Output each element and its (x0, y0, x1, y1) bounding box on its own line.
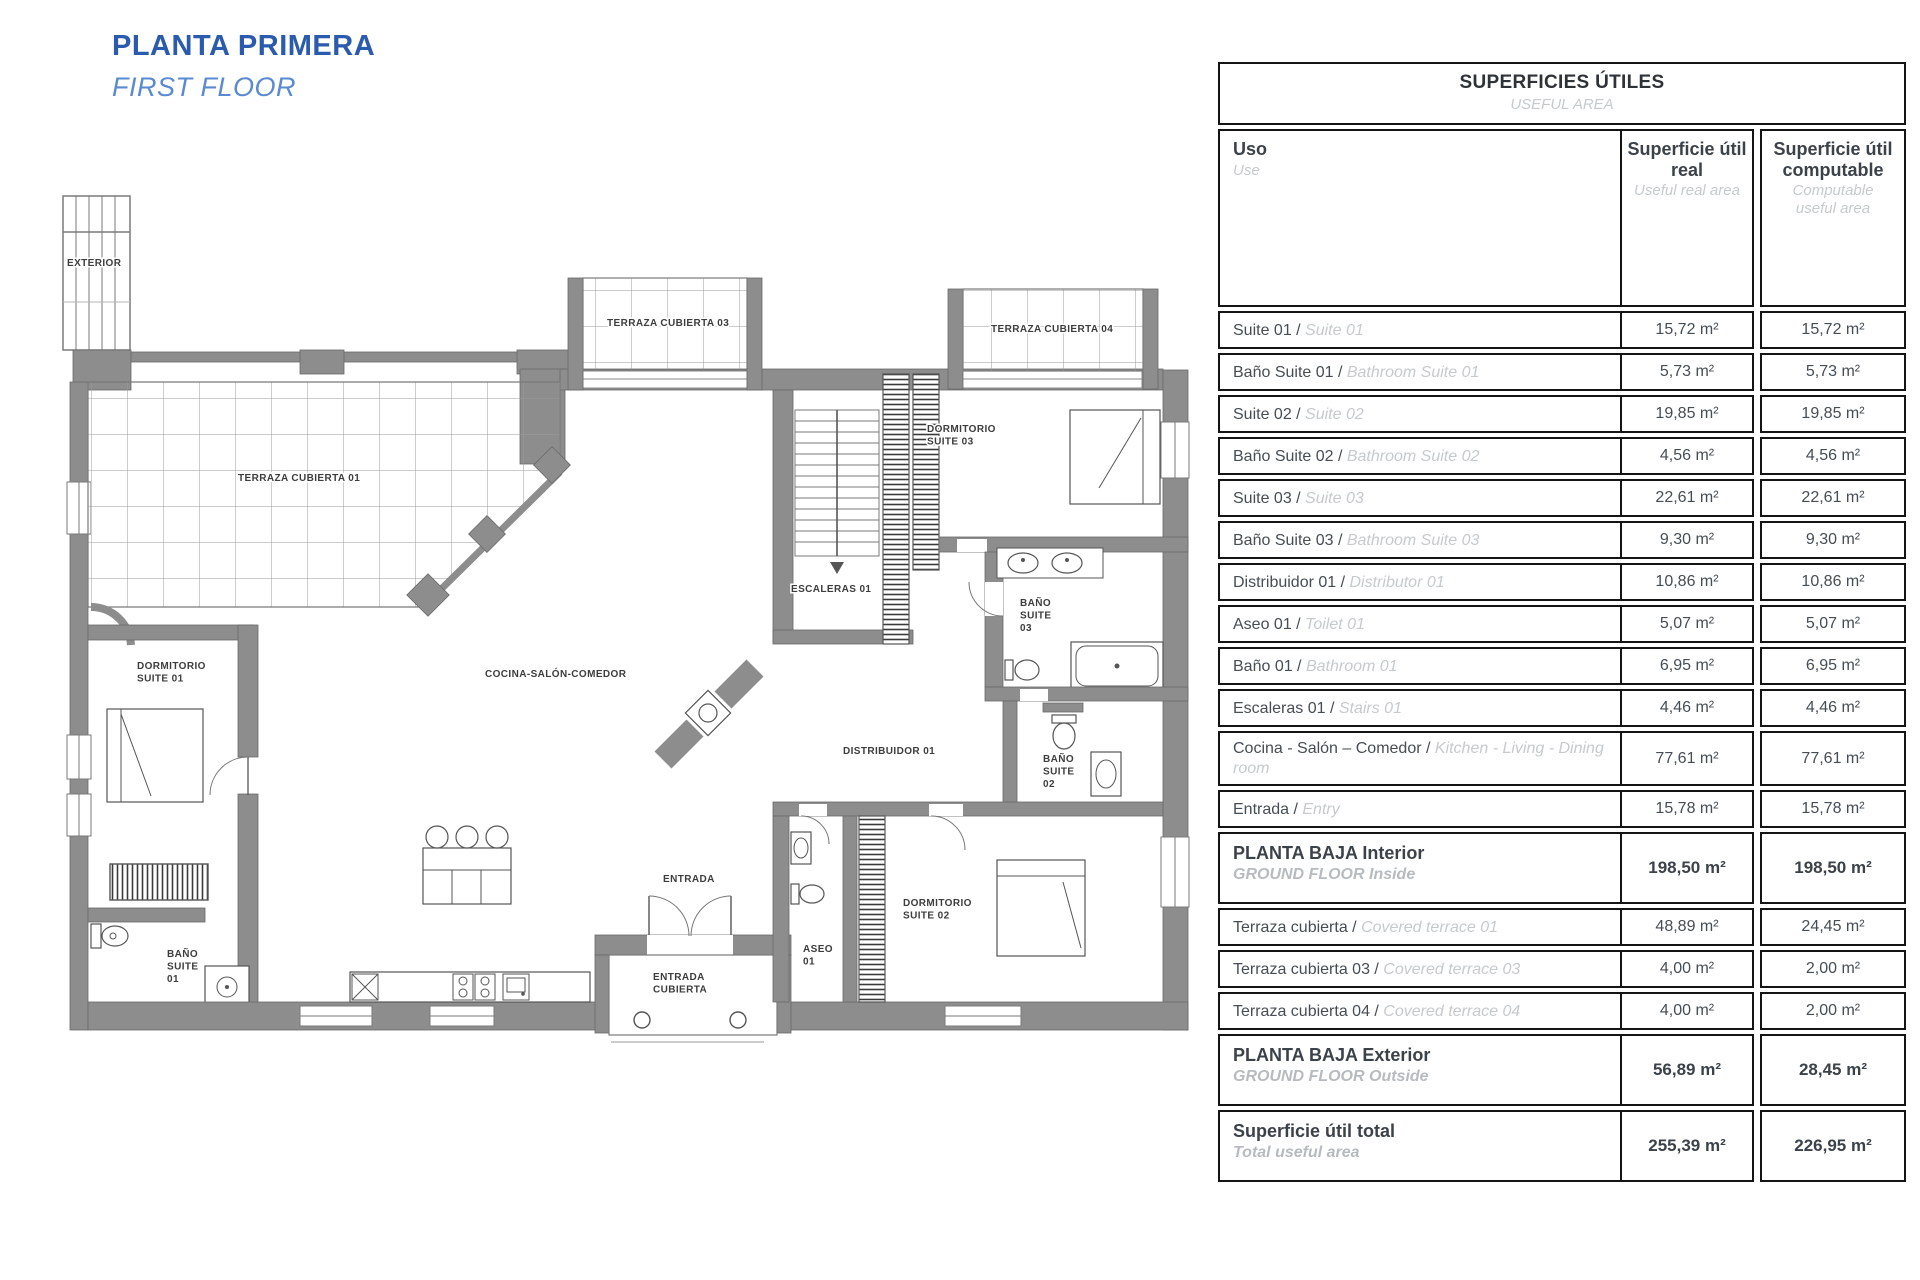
room-label-dormitorio01: DORMITORIOSUITE 01 (137, 661, 206, 685)
kitchen (350, 826, 590, 1002)
real-area-cell: 6,95 m² (1622, 649, 1752, 683)
real-area-cell: 10,86 m² (1622, 565, 1752, 599)
real-area-cell: 77,61 m² (1622, 733, 1752, 784)
use-cell: Aseo 01 / Toilet 01 (1220, 607, 1622, 641)
use-cell: Baño Suite 03 / Bathroom Suite 03 (1220, 523, 1622, 557)
use-cell: Cocina - Salón – Comedor / Kitchen - Liv… (1220, 733, 1622, 784)
real-area-cell: 48,89 m² (1622, 910, 1752, 944)
stool-icon (486, 826, 508, 848)
computable-area-cell: 22,61 m² (1760, 479, 1906, 517)
table-row: Entrada / Entry15,78 m²15,78 m² (1218, 790, 1906, 828)
table-row: Baño 01 / Bathroom 016,95 m²6,95 m² (1218, 647, 1906, 685)
floor-plan: EXTERIORTERRAZA CUBIERTA 01TERRAZA CUBIE… (55, 182, 1190, 1062)
computable-area-cell: 6,95 m² (1760, 647, 1906, 685)
toilet-room-01 (791, 832, 824, 904)
sink-icon (1091, 752, 1121, 796)
table-row: Baño Suite 03 / Bathroom Suite 039,30 m²… (1218, 521, 1906, 559)
use-cell: Terraza cubierta 04 / Covered terrace 04 (1220, 994, 1622, 1028)
room-label-terraza04: TERRAZA CUBIERTA 04 (991, 324, 1113, 335)
room-label-dormitorio02: DORMITORIOSUITE 02 (903, 898, 972, 922)
use-cell: Terraza cubierta 03 / Covered terrace 03 (1220, 952, 1622, 986)
room-label-escaleras01: ESCALERAS 01 (791, 584, 871, 595)
toilet-icon (1005, 660, 1039, 680)
computable-area-cell: 24,45 m² (1760, 908, 1906, 946)
table-row: Suite 02 / Suite 0219,85 m²19,85 m² (1218, 395, 1906, 433)
table-row: Aseo 01 / Toilet 015,07 m²5,07 m² (1218, 605, 1906, 643)
room-label-bano_suite02: BAÑOSUITE02 (1043, 752, 1074, 790)
column-header-uso: Uso (1233, 139, 1610, 160)
use-cell: Terraza cubierta / Covered terrace 01 (1220, 910, 1622, 944)
bedroom-suite-02 (859, 816, 1085, 1002)
computable-area-cell: 4,46 m² (1760, 689, 1906, 727)
table-row: Suite 01 / Suite 0115,72 m²15,72 m² (1218, 311, 1906, 349)
use-cell: Baño Suite 01 / Bathroom Suite 01 (1220, 355, 1622, 389)
column-header-real: Superficie útil real (1624, 139, 1750, 180)
real-area-cell: 15,78 m² (1622, 792, 1752, 826)
real-area-cell: 5,73 m² (1622, 355, 1752, 389)
room-label-bano_suite03: BAÑOSUITE03 (1020, 596, 1051, 634)
terrace-01 (88, 382, 570, 645)
table-row: PLANTA BAJA InteriorGROUND FLOOR Inside1… (1218, 832, 1906, 904)
fireplace (663, 668, 755, 760)
page-subtitle: FIRST FLOOR (112, 72, 296, 103)
table-subtitle: USEFUL AREA (1224, 96, 1900, 113)
real-area-cell: 15,72 m² (1622, 313, 1752, 347)
entrance-porch (595, 896, 791, 1042)
toilet-icon (91, 924, 128, 948)
bed-suite-03 (1070, 410, 1160, 504)
room-label-aseo01: ASEO01 (803, 944, 833, 968)
stool-icon (426, 826, 448, 848)
page: PLANTA PRIMERA FIRST FLOOR (0, 0, 1920, 1280)
computable-area-cell: 28,45 m² (1760, 1034, 1906, 1106)
table-row: Terraza cubierta / Covered terrace 0148,… (1218, 908, 1906, 946)
page-title: PLANTA PRIMERA (112, 30, 375, 63)
sink-icon (791, 832, 811, 864)
table-row: Terraza cubierta 03 / Covered terrace 03… (1218, 950, 1906, 988)
column-header-uso-en: Use (1233, 162, 1610, 179)
double-door-icon (649, 896, 731, 936)
real-area-cell: 255,39 m² (1622, 1112, 1752, 1180)
kitchen-counter (350, 972, 590, 1002)
computable-area-cell: 198,50 m² (1760, 832, 1906, 904)
computable-area-cell: 4,56 m² (1760, 437, 1906, 475)
shelf (1043, 703, 1083, 712)
wardrobe-suite-02 (859, 816, 885, 1002)
computable-area-cell: 19,85 m² (1760, 395, 1906, 433)
computable-area-cell: 2,00 m² (1760, 950, 1906, 988)
use-cell: PLANTA BAJA InteriorGROUND FLOOR Inside (1220, 834, 1622, 902)
computable-area-cell: 9,30 m² (1760, 521, 1906, 559)
table-row: Suite 03 / Suite 0322,61 m²22,61 m² (1218, 479, 1906, 517)
bathroom-suite-02 (1003, 701, 1121, 802)
table-title: SUPERFICIES ÚTILES (1224, 72, 1900, 94)
room-label-dormitorio03: DORMITORIOSUITE 03 (927, 424, 996, 448)
wardrobe-strip (913, 374, 939, 570)
real-area-cell: 22,61 m² (1622, 481, 1752, 515)
real-area-cell: 4,00 m² (1622, 952, 1752, 986)
bathtub-icon (1071, 642, 1163, 690)
bed-suite-02 (997, 860, 1085, 956)
wardrobe-strip (883, 374, 909, 644)
computable-area-cell: 77,61 m² (1760, 731, 1906, 786)
column-header-computable-en: Computable useful area (1772, 182, 1894, 217)
stool-icon (456, 826, 478, 848)
computable-area-cell: 15,72 m² (1760, 311, 1906, 349)
room-label-entrada_cubierta: ENTRADACUBIERTA (653, 972, 707, 996)
stair-direction-arrow (830, 562, 844, 574)
use-cell: PLANTA BAJA ExteriorGROUND FLOOR Outside (1220, 1036, 1622, 1104)
sink-icon (503, 974, 529, 1000)
table-row: Escaleras 01 / Stairs 014,46 m²4,46 m² (1218, 689, 1906, 727)
real-area-cell: 56,89 m² (1622, 1036, 1752, 1104)
real-area-cell: 4,56 m² (1622, 439, 1752, 473)
real-area-cell: 198,50 m² (1622, 834, 1752, 902)
room-label-exterior: EXTERIOR (67, 258, 122, 269)
real-area-cell: 5,07 m² (1622, 607, 1752, 641)
table-row: PLANTA BAJA ExteriorGROUND FLOOR Outside… (1218, 1034, 1906, 1106)
computable-area-cell: 5,73 m² (1760, 353, 1906, 391)
real-area-cell: 4,00 m² (1622, 994, 1752, 1028)
use-cell: Baño 01 / Bathroom 01 (1220, 649, 1622, 683)
porch-column (730, 1012, 746, 1028)
use-cell: Baño Suite 02 / Bathroom Suite 02 (1220, 439, 1622, 473)
bathroom-suite-03 (969, 548, 1188, 701)
exterior-stair (63, 196, 130, 350)
wardrobe-suite-01 (110, 864, 208, 900)
room-label-terraza01: TERRAZA CUBIERTA 01 (238, 473, 360, 484)
table-row: Superficie útil totalTotal useful area25… (1218, 1110, 1906, 1182)
real-area-cell: 9,30 m² (1622, 523, 1752, 557)
use-cell: Escaleras 01 / Stairs 01 (1220, 691, 1622, 725)
computable-area-cell: 2,00 m² (1760, 992, 1906, 1030)
real-area-cell: 19,85 m² (1622, 397, 1752, 431)
column-header-real-en: Useful real area (1634, 182, 1740, 199)
use-cell: Superficie útil totalTotal useful area (1220, 1112, 1622, 1180)
table-title-box: SUPERFICIES ÚTILES USEFUL AREA (1218, 62, 1906, 125)
use-cell: Distribuidor 01 / Distributor 01 (1220, 565, 1622, 599)
porch-column (634, 1012, 650, 1028)
table-header: Uso Use Superficie útil real Useful real… (1218, 129, 1906, 307)
computable-area-cell: 226,95 m² (1760, 1110, 1906, 1182)
table-rows: Suite 01 / Suite 0115,72 m²15,72 m²Baño … (1218, 311, 1906, 1182)
use-cell: Entrada / Entry (1220, 792, 1622, 826)
table-row: Cocina - Salón – Comedor / Kitchen - Liv… (1218, 731, 1906, 786)
real-area-cell: 4,46 m² (1622, 691, 1752, 725)
use-cell: Suite 01 / Suite 01 (1220, 313, 1622, 347)
toilet-icon (1052, 715, 1076, 749)
use-cell: Suite 02 / Suite 02 (1220, 397, 1622, 431)
column-header-computable: Superficie útil computable (1772, 139, 1894, 180)
room-label-distribuidor01: DISTRIBUIDOR 01 (843, 746, 935, 757)
table-row: Baño Suite 01 / Bathroom Suite 015,73 m²… (1218, 353, 1906, 391)
kitchen-island (423, 826, 511, 904)
computable-area-cell: 10,86 m² (1760, 563, 1906, 601)
stairs (773, 374, 939, 644)
room-label-bano_suite01: BAÑOSUITE01 (167, 947, 198, 985)
use-cell: Suite 03 / Suite 03 (1220, 481, 1622, 515)
room-label-entrada: ENTRADA (663, 874, 715, 885)
computable-area-cell: 5,07 m² (1760, 605, 1906, 643)
table-row: Baño Suite 02 / Bathroom Suite 024,56 m²… (1218, 437, 1906, 475)
double-sink-icon (997, 548, 1103, 578)
area-table: SUPERFICIES ÚTILES USEFUL AREA Uso Use S… (1218, 62, 1906, 1182)
room-label-cocina: COCINA-SALÓN-COMEDOR (485, 667, 627, 680)
bed-suite-01 (107, 709, 203, 802)
table-row: Terraza cubierta 04 / Covered terrace 04… (1218, 992, 1906, 1030)
table-row: Distribuidor 01 / Distributor 0110,86 m²… (1218, 563, 1906, 601)
computable-area-cell: 15,78 m² (1760, 790, 1906, 828)
room-label-terraza03: TERRAZA CUBIERTA 03 (607, 318, 729, 329)
toilet-icon (791, 884, 824, 904)
